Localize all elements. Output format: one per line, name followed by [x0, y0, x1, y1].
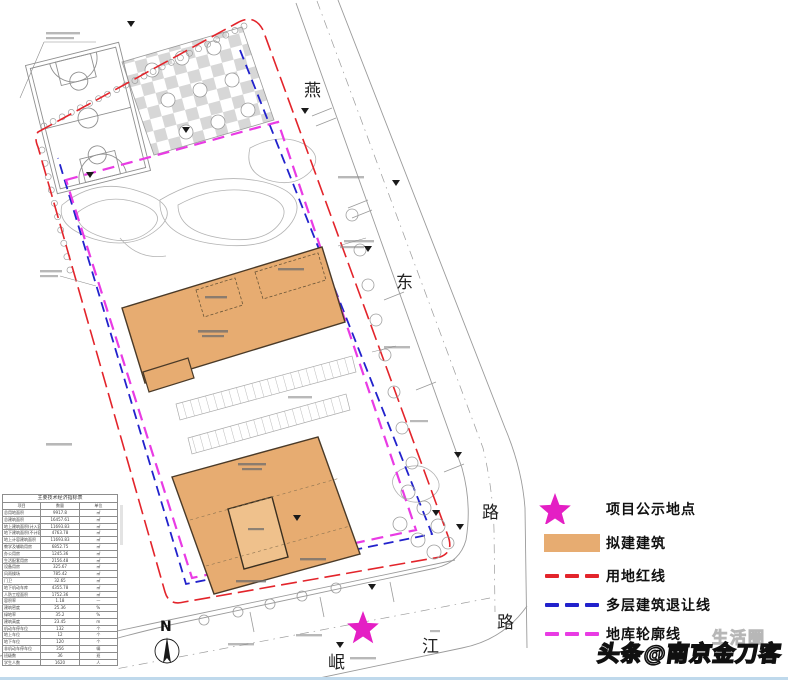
parking-rows	[176, 356, 356, 454]
table-row: 办公用房1245.36㎡	[3, 550, 118, 557]
north-compass: N	[155, 619, 179, 663]
street-char-min: 岷	[328, 653, 345, 673]
table-header-item: 项目	[3, 503, 41, 510]
proposed-buildings	[122, 247, 360, 594]
notice-location-star	[347, 611, 379, 643]
table-row: 风雨操场785.42㎡	[3, 571, 118, 578]
table-row: 学生人数1620人	[3, 659, 118, 666]
building-swatch-icon	[538, 534, 606, 552]
table-row: 容积率1.18—	[3, 598, 118, 605]
legend-row-red-line: 用地红线	[538, 563, 788, 588]
table-row: 地上建筑面积(计入容积率)11693.83㎡	[3, 523, 118, 530]
tree-plaza	[122, 27, 274, 155]
lower-building	[172, 437, 360, 594]
table-row: 地下车位120个	[3, 639, 118, 646]
table-row: 机动车停车位132个	[3, 625, 118, 632]
indicator-table-title: 主要技术经济指标表	[3, 495, 118, 503]
watermark-author: 头条@南京金刀客	[596, 636, 785, 668]
compass-n-label: N	[160, 619, 172, 635]
legend-label-red-line: 用地红线	[606, 566, 666, 586]
table-row: 班级数36班	[3, 652, 118, 659]
site-plan-page: 燕 东 路 路 江 岷 N 主要技术经济指标表 项目 数量 单位	[0, 0, 788, 680]
table-header-value: 数量	[41, 503, 79, 510]
table-row: 地上计容建筑面积11693.83㎡	[3, 537, 118, 544]
legend-row-notice-location: 项目公示地点	[538, 492, 788, 526]
legend-row-blue-line: 多层建筑退让线	[538, 592, 788, 617]
table-row: 教学及辅助用房6852.75㎡	[3, 544, 118, 551]
table-row: 门卫32.65㎡	[3, 578, 118, 585]
street-char-lu-east: 路	[482, 503, 499, 523]
magenta-dash-icon	[538, 632, 606, 636]
indicator-table: 主要技术经济指标表 项目 数量 单位 总用地面积9917.8㎡总建筑面积1645…	[2, 494, 118, 676]
table-row: 建筑密度25.36%	[3, 605, 118, 612]
legend-label-proposed-building: 拟建建筑	[606, 533, 666, 553]
blue-dash-icon	[538, 603, 606, 607]
red-dash-icon	[538, 574, 606, 578]
table-row: 地上车位12个	[3, 632, 118, 639]
legend-label-notice-location: 项目公示地点	[606, 499, 696, 519]
street-char-yan: 燕	[304, 81, 321, 101]
table-row: 地下建筑面积(不计容积率)4763.78㎡	[3, 530, 118, 537]
table-row: 总用地面积9917.8㎡	[3, 510, 118, 517]
table-row: 总建筑面积16457.61㎡	[3, 516, 118, 523]
table-row: 人防工程面积1752.36㎡	[3, 591, 118, 598]
table-row: 非机动车停车位356辆	[3, 645, 118, 652]
street-char-lu-south: 路	[497, 613, 514, 633]
street-char-jiang: 江	[422, 637, 439, 657]
street-char-dong: 东	[396, 273, 413, 293]
table-row: 建筑高度23.45m	[3, 618, 118, 625]
table-header-unit: 单位	[79, 503, 117, 510]
legend-label-blue-line: 多层建筑退让线	[606, 595, 711, 615]
table-row: 绿地率35.2%	[3, 612, 118, 619]
table-row: 设备用房325.67㎡	[3, 564, 118, 571]
indicator-table-body: 总用地面积9917.8㎡总建筑面积16457.61㎡地上建筑面积(计入容积率)1…	[3, 510, 118, 666]
legend-row-proposed-building: 拟建建筑	[538, 530, 788, 555]
table-row: 生活配套用房2156.48㎡	[3, 557, 118, 564]
table-row: 地下机动车库4355.78㎡	[3, 584, 118, 591]
